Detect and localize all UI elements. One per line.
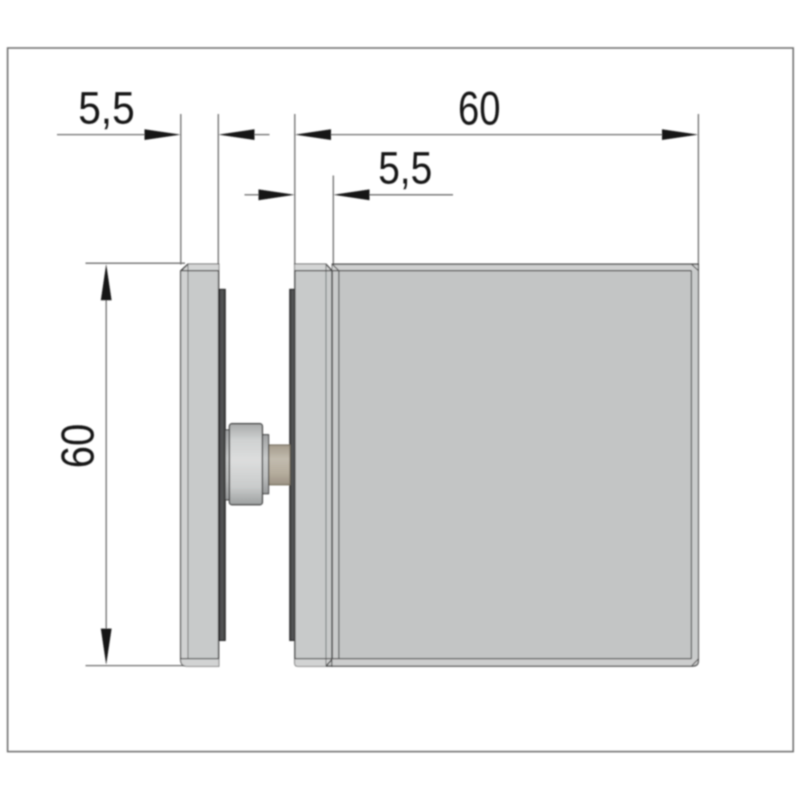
svg-text:5,5: 5,5 [378,143,432,194]
svg-text:60: 60 [52,424,104,469]
svg-text:5,5: 5,5 [78,82,135,133]
svg-text:60: 60 [458,81,501,134]
